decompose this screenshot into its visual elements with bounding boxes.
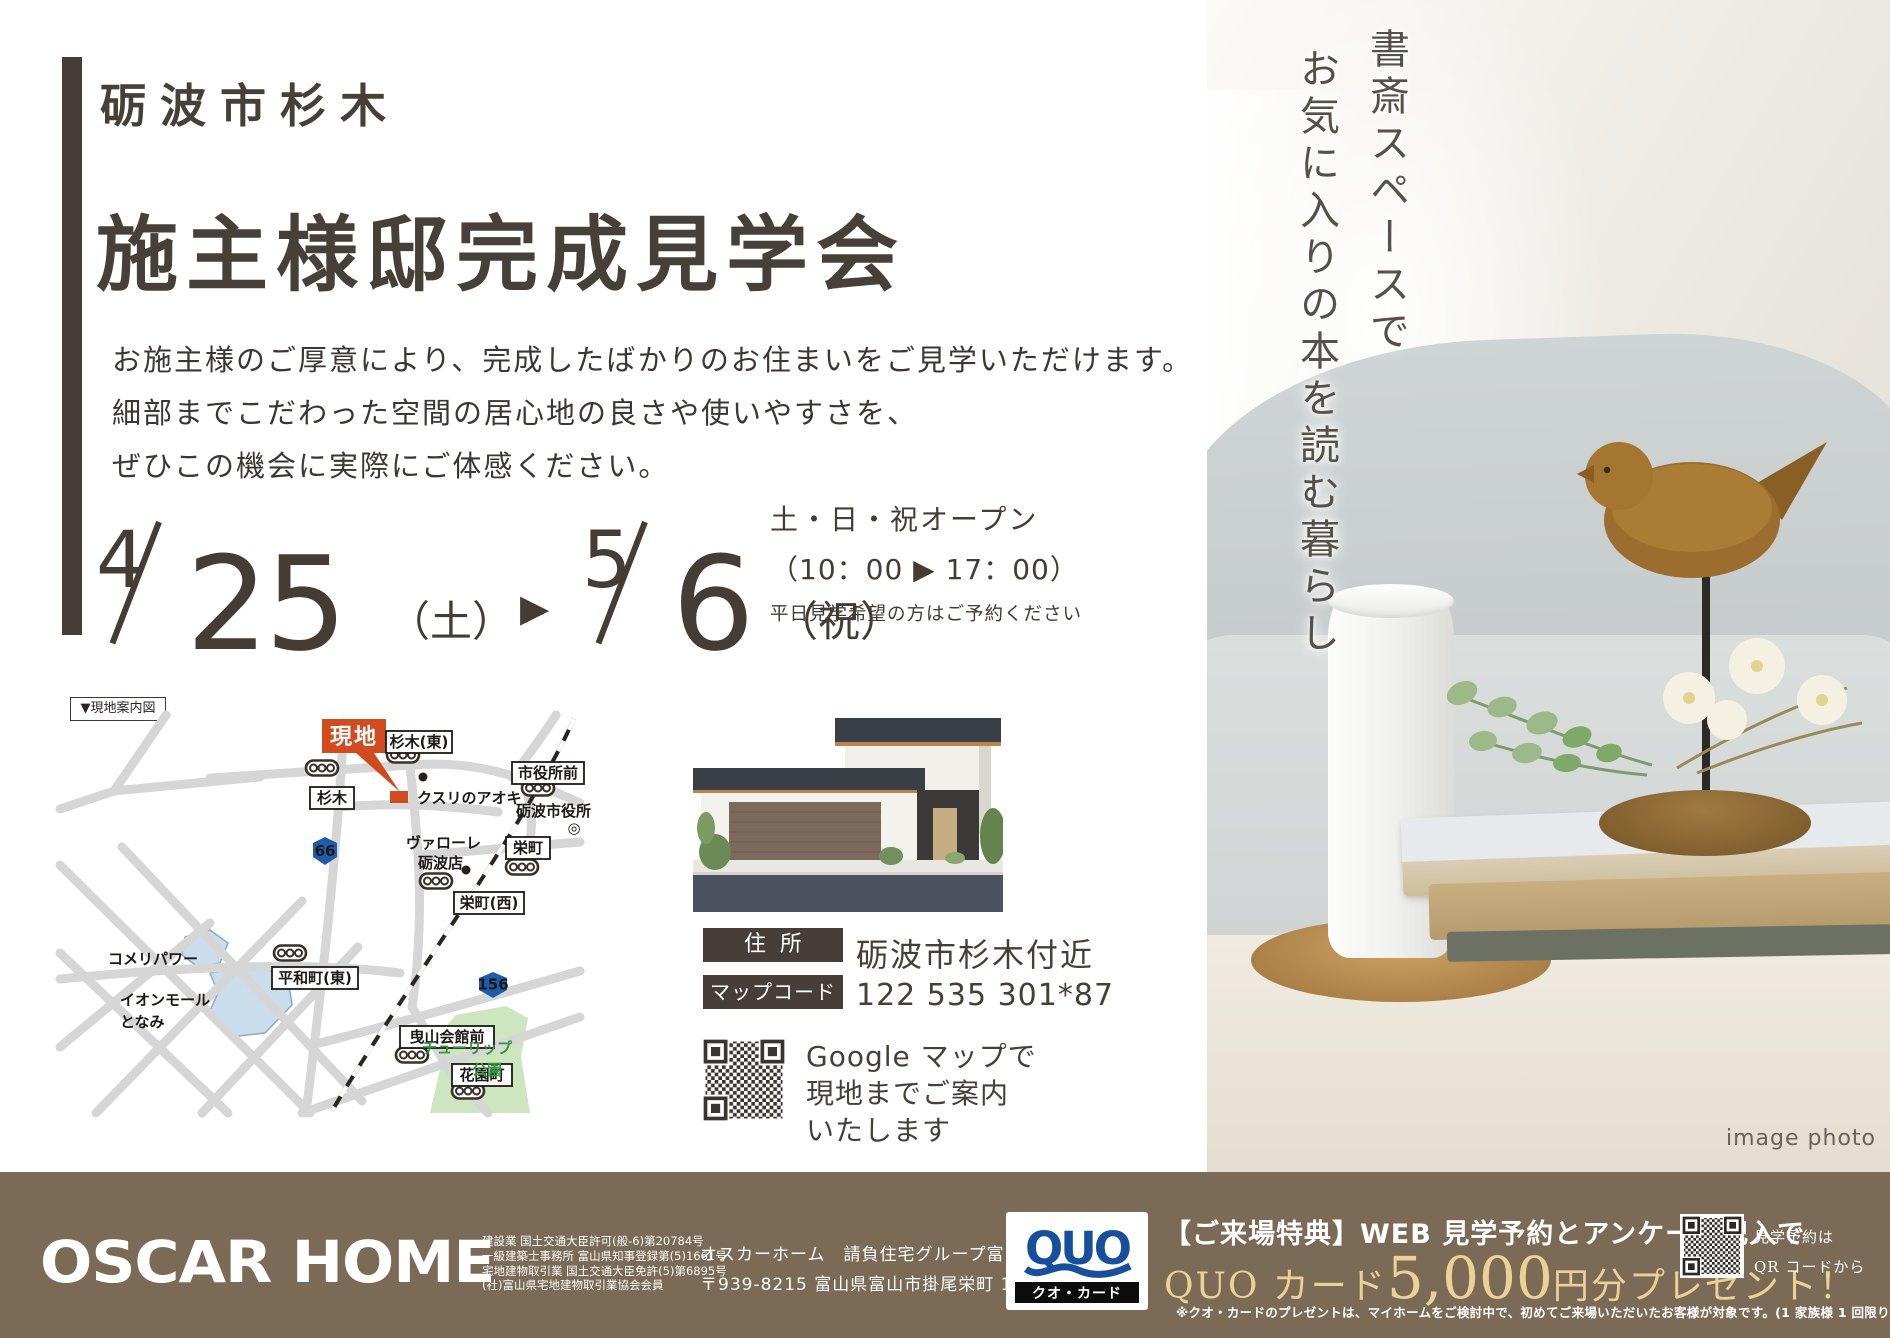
- intro-text: お施主様のご厚意により、完成したばかりのお住まいをご見学いただけます。 細部まで…: [112, 334, 1193, 493]
- map-qr-code: [700, 1036, 788, 1124]
- date-range-arrow-icon: ▶: [520, 586, 549, 630]
- google-map-note-1: Google マップで: [806, 1038, 1037, 1075]
- google-map-note: Google マップで 現地までご案内 いたします: [806, 1038, 1037, 1149]
- intro-line-3: ぜひこの機会に実際にご体感ください。: [112, 440, 1193, 493]
- weekday-note: 平日見学希望の方はご予約ください: [770, 600, 1090, 626]
- license-line-4: (社)富山県宅地建物取引業協会会員: [482, 1278, 727, 1293]
- intro-line-1: お施主様のご厚意により、完成したばかりのお住まいをご見学いただけます。: [112, 334, 1193, 387]
- map-label-tulip-park-2: 公園: [472, 1061, 502, 1079]
- map-label-komeri: コメリパワー: [108, 950, 198, 968]
- map-label-sakaemachi: 栄町: [512, 839, 543, 857]
- lifestyle-photo: 書斎スペースで お気に入りの本を読む暮らし image photo: [1207, 0, 1890, 1172]
- flyer-page: 砺波市杉木 施主様邸完成見学会 お施主様のご厚意により、完成したばかりのお住まい…: [0, 0, 1890, 1338]
- white-mug-top: [1328, 584, 1454, 618]
- google-map-note-2: 現地までご案内: [806, 1075, 1037, 1112]
- license-line-2: 一級建築士事務所 富山県知事登録第(5)1661号: [482, 1249, 727, 1264]
- license-block: 建設業 国土交通大臣許可(般-6)第20784号 一級建築士事務所 富山県知事登…: [482, 1234, 727, 1293]
- quo-card-logo: QUO クオ・カード: [1006, 1212, 1148, 1310]
- map-label-kusuri: クスリのアオキ: [417, 789, 522, 807]
- open-time: （10：00 ▶ 17：00）: [770, 548, 1090, 588]
- cityhall-mark: ◎: [567, 819, 580, 837]
- wooden-bird-figurine: [1577, 428, 1827, 593]
- map-label-valore-2: 砺波店: [418, 854, 463, 872]
- location-title: 砺波市杉木: [100, 70, 400, 136]
- map-label-aeon-2: となみ: [120, 1013, 165, 1031]
- page-title: 施主様邸完成見学会: [96, 188, 906, 307]
- address-label: 住所: [703, 928, 843, 962]
- quo-sub-text: クオ・カード: [1032, 1286, 1122, 1302]
- eucalyptus-branch: [1417, 655, 1657, 795]
- site-marker: [390, 791, 408, 803]
- map-label-heiwamachi-east: 平和町(東): [278, 969, 352, 987]
- white-flowers: [1637, 628, 1867, 778]
- start-month: 4: [96, 516, 146, 606]
- end-month: 5: [582, 516, 632, 606]
- reservation-qr-note-1: 見学予約は: [1754, 1222, 1865, 1252]
- start-day: 25: [186, 528, 343, 680]
- house-rendering: [693, 712, 1003, 912]
- svg-text:156: 156: [477, 976, 508, 994]
- traffic-light-icon: [306, 761, 338, 776]
- reservation-qr-note: 見学予約は QR コードから: [1754, 1222, 1865, 1282]
- intro-line-2: 細部までこだわった空間の居心地の良さや使いやすさを、: [112, 387, 1193, 440]
- kusuri-dot: [419, 773, 428, 782]
- traffic-light-icon: [420, 874, 452, 889]
- license-line-1: 建設業 国土交通大臣許可(般-6)第20784号: [482, 1234, 727, 1249]
- traffic-light-icon: [274, 946, 306, 961]
- photo-copy-line-2: お気に入りの本を読む暮らし: [1287, 48, 1345, 659]
- map-label-sakaemachi-west: 栄町(西): [459, 894, 519, 912]
- map-label-sugiki-east: 杉木(東): [390, 733, 449, 751]
- start-weekday: （土）: [388, 588, 514, 649]
- open-hours: 土・日・祝オープン （10：00 ▶ 17：00） 平日見学希望の方はご予約くだ…: [770, 498, 1090, 626]
- license-line-3: 宅地建物取引業 国土交通大臣免許(5)第6895号: [482, 1264, 727, 1279]
- traffic-light-icon: [506, 860, 538, 875]
- map-label-aeon-1: イオンモール: [120, 991, 210, 1009]
- bird-stand-base: [1599, 790, 1811, 856]
- site-label: 現地: [330, 725, 378, 750]
- company-address: 〒939-8215 富山県富山市掛尾栄町 1-1: [700, 1270, 1031, 1295]
- accent-bar: [62, 57, 82, 635]
- address-value: 砺波市杉木付近: [856, 930, 1094, 976]
- map-label-cityhall: 砺波市役所: [516, 802, 591, 820]
- reservation-qr-code: [1680, 1214, 1744, 1278]
- end-day: 6: [672, 528, 751, 680]
- company-logo: OSCAR HOME: [40, 1228, 494, 1296]
- event-dates: 4 25 （土） ▶ 5 6 （祝）: [90, 512, 810, 657]
- map-label-shiyakusho-mae: 市役所前: [518, 764, 578, 782]
- image-photo-caption: image photo: [1726, 1126, 1876, 1151]
- open-days: 土・日・祝オープン: [770, 498, 1090, 538]
- mapcode-label: マップコード: [703, 975, 843, 1009]
- map-label-tulip-park-1: チューリップ: [422, 1039, 513, 1057]
- area-map: 66 156 現地 杉木(東) 杉木 市役所前: [60, 715, 580, 1115]
- map-label-valore-1: ヴァローレ: [406, 834, 481, 852]
- map-label-sugiki: 杉木: [317, 789, 348, 807]
- photo-copy-line-1: 書斎スペースで: [1357, 28, 1415, 357]
- footer-bar: OSCAR HOME 建設業 国土交通大臣許可(般-6)第20784号 一級建築…: [0, 1172, 1890, 1338]
- mapcode-value: 122 535 301*87: [856, 978, 1114, 1013]
- google-map-note-3: いたします: [806, 1112, 1037, 1149]
- promo-note: ※クオ・カードのプレゼントは、マイホームをご検討中で、初めてご来場いただいたお客…: [1176, 1302, 1890, 1321]
- svg-text:66: 66: [315, 842, 336, 860]
- reservation-qr-note-2: QR コードから: [1754, 1252, 1865, 1282]
